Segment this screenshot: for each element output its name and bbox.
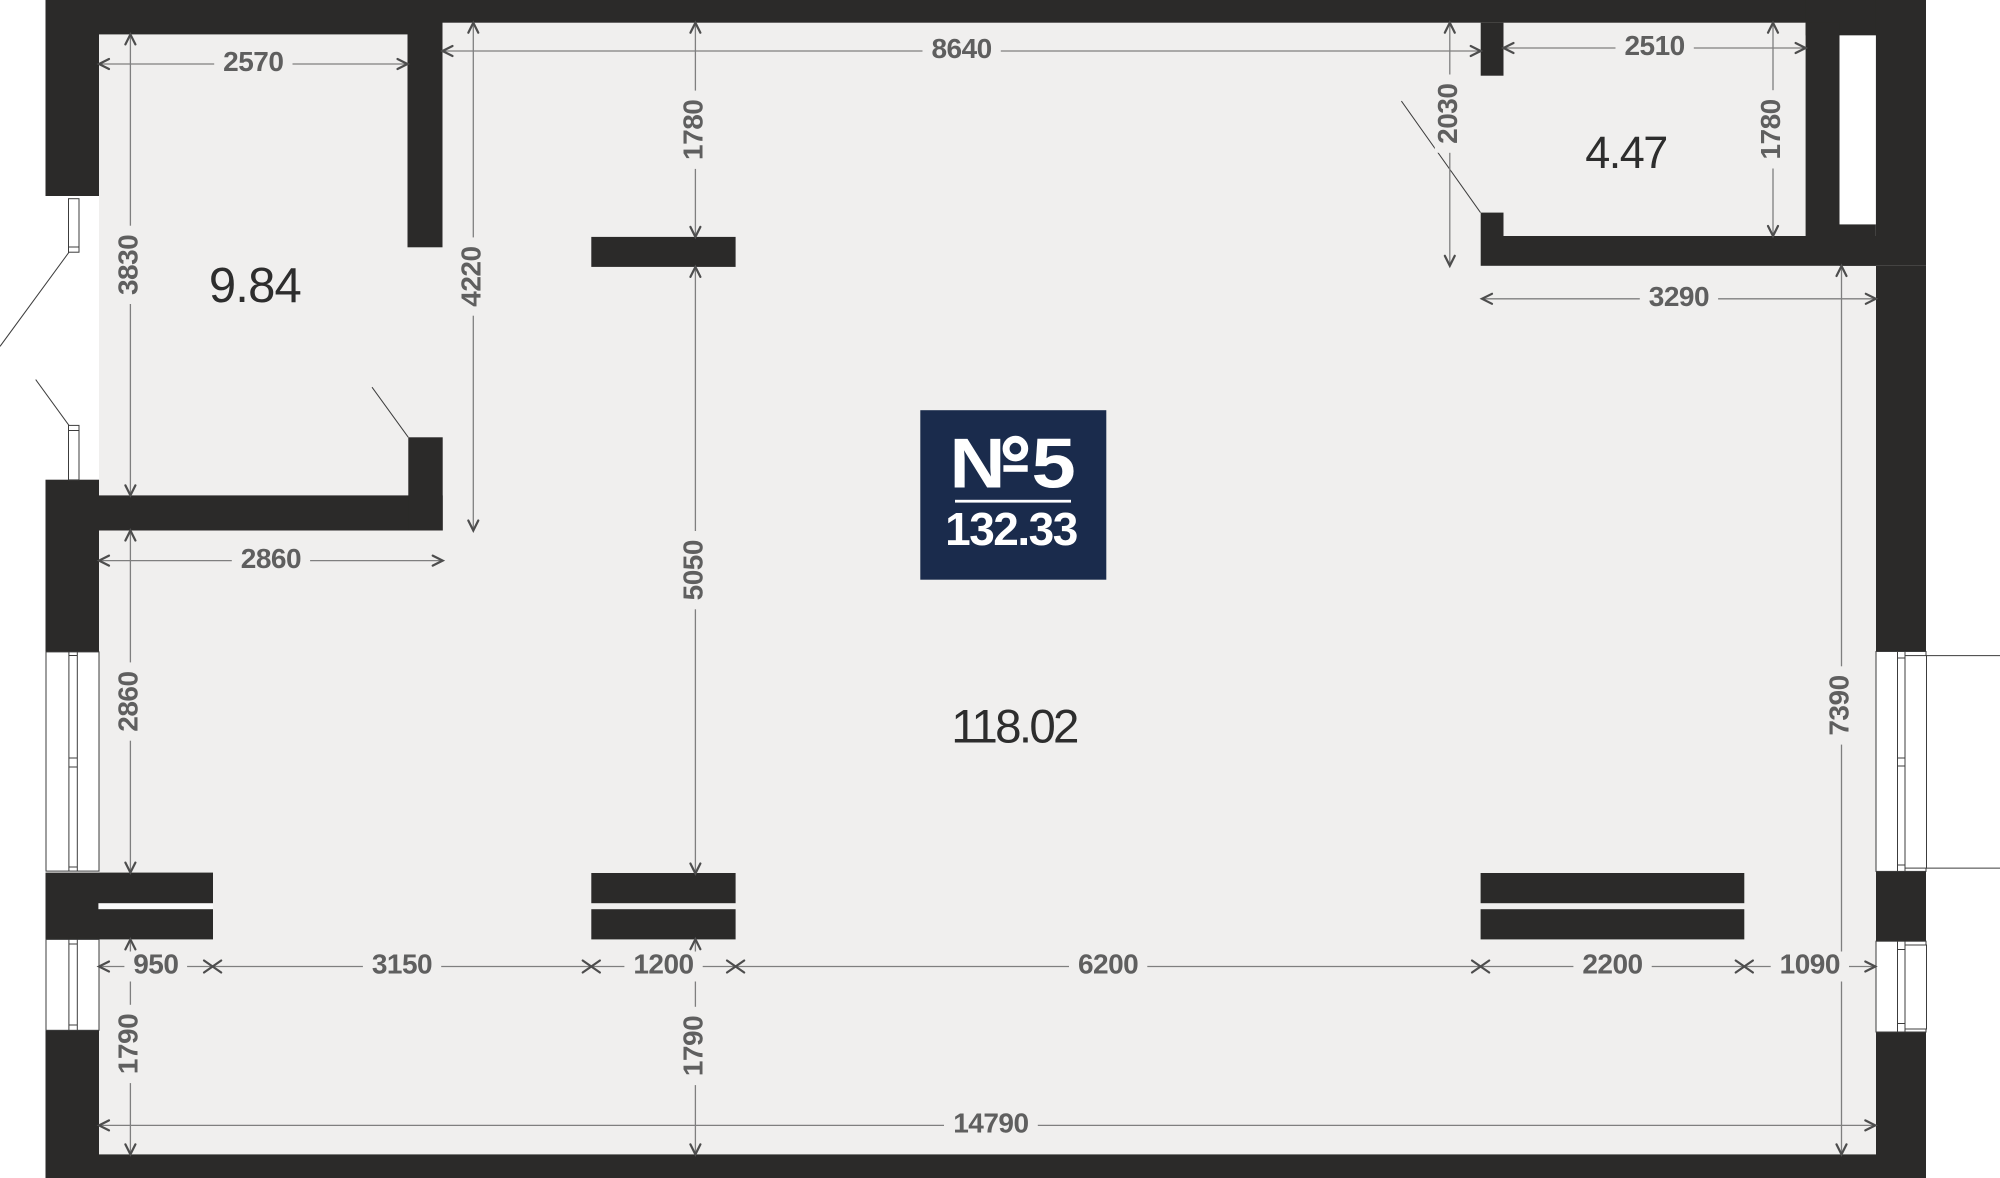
svg-text:118.02: 118.02 [951, 700, 1078, 753]
svg-text:132.33: 132.33 [945, 503, 1077, 555]
svg-text:14790: 14790 [953, 1108, 1028, 1139]
svg-text:5: 5 [1032, 424, 1076, 503]
svg-text:2030: 2030 [1432, 84, 1463, 144]
svg-text:5050: 5050 [678, 540, 709, 600]
svg-text:3290: 3290 [1649, 281, 1709, 312]
svg-text:9.84: 9.84 [209, 259, 301, 313]
svg-text:1780: 1780 [1755, 99, 1786, 159]
svg-text:2510: 2510 [1624, 30, 1684, 61]
svg-text:N: N [950, 424, 1006, 503]
svg-text:2860: 2860 [241, 543, 301, 574]
svg-text:3830: 3830 [113, 235, 144, 295]
svg-text:1200: 1200 [633, 949, 693, 980]
svg-text:4220: 4220 [456, 246, 487, 306]
svg-text:3150: 3150 [372, 949, 432, 980]
svg-text:1780: 1780 [678, 100, 709, 160]
svg-text:1090: 1090 [1780, 949, 1840, 980]
svg-text:4.47: 4.47 [1585, 127, 1667, 178]
svg-text:8640: 8640 [931, 33, 991, 64]
svg-text:2200: 2200 [1582, 949, 1642, 980]
svg-text:6200: 6200 [1078, 949, 1138, 980]
svg-text:2570: 2570 [223, 46, 283, 77]
svg-text:7390: 7390 [1824, 675, 1855, 735]
svg-text:1790: 1790 [113, 1014, 144, 1074]
svg-text:950: 950 [133, 949, 178, 980]
svg-text:2860: 2860 [113, 671, 144, 731]
svg-text:1790: 1790 [678, 1016, 709, 1076]
